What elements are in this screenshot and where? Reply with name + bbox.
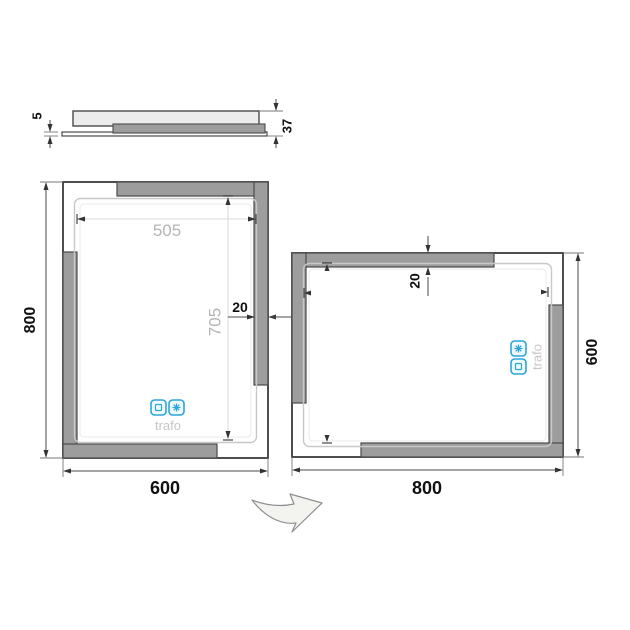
landscape-trafo-label: trafo	[529, 344, 544, 370]
portrait-height-label: 800	[22, 307, 39, 334]
mirror-drawing-svg: 5 37 505	[0, 0, 630, 630]
led-width-label: 505	[153, 221, 181, 240]
rotate-arrow-icon	[252, 494, 322, 532]
dimension-glass-thickness: 5	[29, 112, 58, 148]
dimension-portrait-width: 600	[63, 458, 268, 498]
technical-drawing-page: 5 37 505	[0, 0, 630, 630]
dimension-landscape-height: 600	[563, 253, 601, 457]
landscape-strip-label: 20	[407, 273, 423, 289]
dimension-landscape-width: 800	[292, 457, 563, 498]
snowflake-icon	[169, 400, 184, 415]
landscape-mirror-view: 20 trafo	[292, 236, 601, 498]
square-icon	[151, 400, 166, 415]
landscape-height-label: 600	[584, 339, 601, 366]
portrait-mirror-view: 505 705 20	[22, 182, 291, 498]
led-height-label: 705	[205, 308, 224, 336]
landscape-width-label: 800	[412, 478, 442, 498]
portrait-strip-label: 20	[232, 299, 248, 315]
side-profile-view: 5 37	[29, 99, 294, 148]
depth-label: 37	[279, 119, 294, 133]
square-icon	[511, 359, 526, 374]
portrait-width-label: 600	[150, 478, 180, 498]
glass-thickness-label: 5	[29, 112, 44, 119]
snowflake-icon	[511, 341, 526, 356]
side-led-layer	[113, 124, 265, 133]
portrait-trafo-label: trafo	[155, 418, 181, 433]
dimension-portrait-height: 800	[22, 182, 63, 458]
